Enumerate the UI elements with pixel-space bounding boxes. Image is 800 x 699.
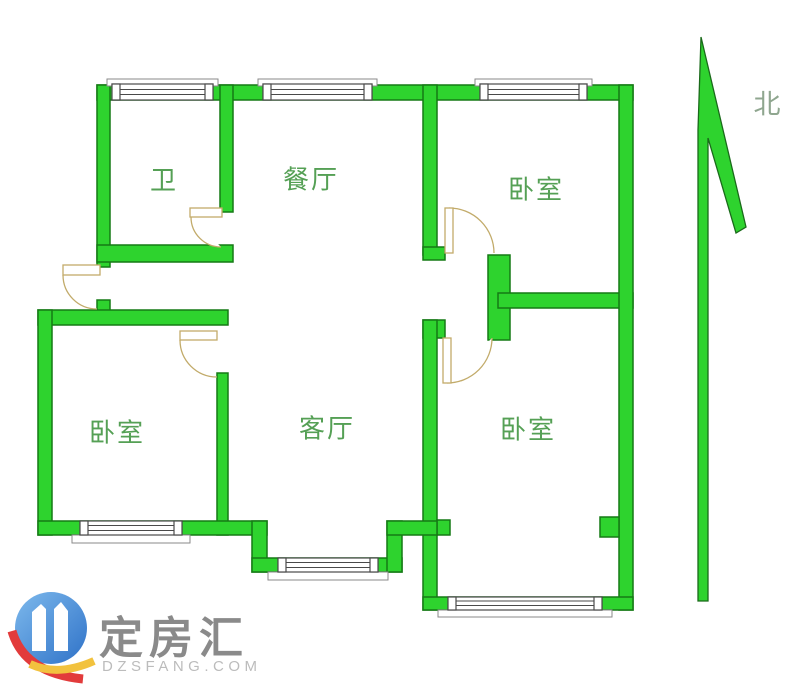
wall-bedroom-bl-right [217, 373, 228, 535]
door-bedroom-tr [445, 208, 494, 253]
door-bedroom-bl [180, 331, 217, 377]
compass-north-label: 北 [754, 83, 781, 122]
north-arrow-icon [698, 37, 746, 601]
watermark-brand: 定房汇 [99, 602, 249, 666]
wall-divider-mid-stub [437, 520, 450, 535]
window-living-bay [268, 558, 388, 580]
wall-bedroom-bl-top [38, 310, 228, 325]
wall-divider-upper [423, 85, 437, 255]
window-bedroom-br [438, 597, 612, 617]
wall-living-bottom-right [387, 521, 437, 535]
window-top-dining [258, 79, 377, 100]
room-label-bathroom: 卫 [150, 161, 178, 198]
wall-right-stub [600, 517, 619, 537]
floorplan-image: 卫 餐厅 卧室 卧室 客厅 卧室 北 定房汇 DZSFANG.COM [0, 0, 800, 699]
room-label-bedroom-bottom-right: 卧室 [500, 410, 556, 447]
watermark-site-url: DZSFANG.COM [102, 658, 262, 675]
room-label-bedroom-top-right: 卧室 [508, 170, 564, 207]
door-entry [63, 265, 100, 309]
wall-bathroom-bottom [97, 245, 233, 262]
wall-divider-upper-stub [423, 247, 445, 260]
room-label-dining: 餐厅 [283, 160, 339, 197]
wall-bathroom-right [220, 85, 233, 212]
wall-left-upper [97, 85, 110, 267]
wall-right-horizontal [498, 293, 633, 308]
wall-bedroom-bl-left [38, 310, 52, 535]
wall-divider-lower [423, 320, 437, 610]
room-label-living: 客厅 [299, 409, 355, 446]
floorplan-drawing [0, 0, 800, 699]
logo-icon [12, 592, 94, 679]
window-top-right [475, 79, 592, 100]
door-bedroom-br [443, 338, 492, 383]
room-label-bedroom-bottom-left: 卧室 [89, 413, 145, 450]
window-bedroom-bl [72, 521, 190, 543]
wall-right [619, 85, 633, 610]
window-top-left [107, 79, 218, 100]
door-bathroom [190, 208, 222, 247]
